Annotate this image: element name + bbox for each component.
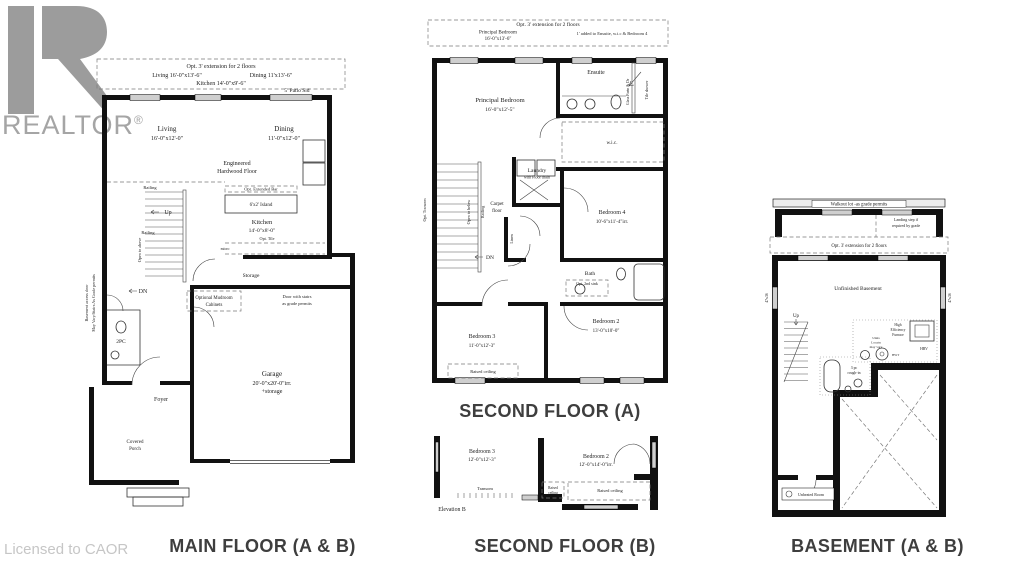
sink-icon [585, 99, 595, 109]
floorplan-sheet: REALTOR® Licensed to CAOR Opt. 3' extens… [0, 0, 1024, 572]
sfa-dn-label: DN [486, 255, 494, 261]
principal-dim: 16'-0"x12'-5" [485, 107, 514, 113]
up-arrow-icon [151, 210, 159, 214]
bsmt-labels: Unfinished Basement 47x36 47x36 [765, 285, 952, 303]
sfb-bed2-dim: 12'-0"x14'-0"irr. [579, 462, 613, 468]
floor-note-1: Engineered [223, 161, 250, 167]
bsmt-opt-ext-label: Opt. 3' extension for 2 floors [831, 244, 886, 249]
floor-note-2: Hardwood Floor [217, 169, 257, 175]
unheated-label: Unheated Room [798, 492, 825, 497]
tub-icon [634, 264, 664, 300]
bed4-dim: 10'-6"x11'-4"irr. [596, 220, 628, 225]
carpet-label-2: floor [492, 209, 502, 214]
bed2-label: Bedroom 2 [593, 319, 620, 325]
living-label: Living [158, 125, 177, 133]
kitchen-label: Kitchen [252, 219, 273, 226]
main-powder-room [107, 310, 140, 365]
laundry-label-2: with Floor drain [524, 175, 550, 180]
hwt-icon [876, 348, 888, 360]
porch-label-2: Porch [129, 447, 141, 452]
landing-note-2: required by grade [892, 223, 920, 228]
sfa-opt-added: 1' added to Ensuite, w.i.c & Bedroom 4 [577, 31, 649, 37]
dn-arrow-icon [129, 289, 137, 293]
kitchen-dim: 14'-0"x8'-0" [249, 228, 276, 234]
furnace-label-2: Efficiency [891, 328, 906, 332]
sfb-raised-2: ceiling [548, 491, 558, 495]
sink-icon [567, 99, 577, 109]
micro-label: micro [221, 247, 230, 251]
bsmt-unexcavated-walls [833, 363, 946, 517]
wic-label: w.i.c. [606, 140, 617, 146]
laundry-label-1: Laundry [528, 168, 547, 174]
main-opt-living: Living 16'-0"x13'-6" [152, 73, 202, 79]
main-opt-dining: Dining 11'x13'-6" [250, 73, 293, 79]
main-garage-door [230, 461, 330, 464]
second-floor-b-plan: Bedroom 3 12'-0"x12'-3" Bedroom 2 12'-0"… [418, 430, 688, 525]
main-opt-ext-label: Opt. 3' extension for 2 floors [186, 63, 256, 70]
main-exterior-walls [102, 95, 355, 464]
toilet-icon [611, 95, 621, 109]
raised-ceiling-label: Raised ceiling [470, 369, 496, 374]
open-above-label: Open to above [137, 238, 142, 263]
mudroom-label-1: Optional Mudroom [195, 296, 232, 301]
main-opt-kitchen: Kitchen 14'-0"x9'-6" [196, 81, 246, 87]
sfa-door-arcs [482, 118, 588, 330]
sfa-stairs [437, 162, 481, 272]
window-size-left: 47x36 [765, 293, 769, 303]
sfb-transom-label: Transom [477, 486, 493, 491]
opt-transom-label: Opt. Transom [422, 198, 427, 222]
carpet-label-1: Carpet [490, 202, 504, 207]
hrv-label: HRV [920, 347, 928, 351]
sfb-raised-full: Raised ceiling [597, 488, 623, 493]
bsmt-stairs: Up [784, 314, 808, 382]
mudroom-label-2: Cabinets [206, 303, 223, 308]
main-mudroom [187, 291, 241, 311]
foyer-label: Foyer [154, 397, 168, 403]
sfa-opt-pb-1: Principal Bedroom [479, 31, 517, 36]
tank-icon [861, 351, 870, 360]
up-label: Up [164, 210, 171, 216]
sfa-opt-ext: Opt. 3' extension for 2 floors [516, 21, 579, 28]
units-note-1: Units [872, 336, 880, 340]
railing-label: Railing [480, 205, 485, 218]
sfb-labels: Bedroom 3 12'-0"x12'-3" Bedroom 2 12'-0"… [438, 449, 623, 513]
powder-label: 2PC [116, 339, 126, 345]
sfa-laundry-fixtures [517, 160, 555, 200]
bsmt-unheated-room: Unheated Room [778, 475, 836, 500]
bsmt-rough-in: 3 pc rough-in [820, 357, 870, 395]
caption-second-floor-b: SECOND FLOOR (B) [430, 536, 700, 557]
bsmt-exterior-walls [772, 255, 946, 517]
main-patio-label: 5' Patio Sld [284, 88, 309, 94]
units-note-2: Locatn [871, 341, 881, 345]
opt-tile-label: Opt. Tile [260, 236, 275, 241]
main-kitchen-fixtures [225, 140, 325, 254]
hwt-label: HWT [892, 353, 899, 357]
railing-label-2: Railing [141, 230, 155, 235]
ensuite-label: Ensuite [587, 70, 605, 76]
tile-shower-label: Tile shower [644, 80, 649, 100]
living-dim: 16'-0"x12'-0" [151, 136, 184, 142]
bsmt-up-label: Up [793, 314, 800, 319]
basement-plan: Walkout lot -as grade permits Landing st… [758, 192, 970, 532]
rough-in-label-2: rough-in [847, 371, 860, 375]
sink-icon [111, 351, 119, 359]
second-floor-a-plan: Opt. 3' extension for 2 floors Principal… [420, 12, 680, 397]
logo-stem [8, 6, 34, 114]
porch-label-1: Covered [127, 440, 144, 445]
dining-dim: 11'-0"x12'-0" [268, 136, 300, 142]
railing-label-1: Railing [143, 185, 157, 190]
bsmt-walkout: Walkout lot -as grade permits Landing st… [773, 199, 945, 237]
storage-label: Storage [243, 273, 260, 279]
main-stairs [107, 182, 225, 282]
toilet-icon [854, 379, 862, 387]
opt-sink-label: Opt. 2nd sink [576, 281, 598, 286]
sfb-raised-1: Raised [548, 486, 558, 490]
glass-partn-label: Glass Partn & Dr [626, 78, 630, 105]
furnace-icon [910, 321, 934, 341]
sfb-walls [434, 436, 658, 510]
door-note-1: Door with stairs [283, 294, 312, 299]
sfa-opt-pb-2: 16'-0"x13'-6" [485, 37, 512, 42]
sfb-transom-dashes [458, 493, 512, 498]
walkout-label: Walkout lot -as grade permits [831, 203, 888, 208]
main-floor-plan: Opt. 3' extension for 2 floors Living 16… [75, 45, 375, 535]
dn-label: DN [139, 289, 148, 295]
island-label: 6'x2' Island [250, 203, 273, 208]
bed2-dim: 13'-0"x10'-0" [593, 329, 620, 334]
sfa-dn-arrow-icon [475, 255, 483, 259]
furnace-label-1: High [894, 323, 901, 327]
furnace-label-3: Furnace [892, 333, 904, 337]
garage-dim2: +storage [262, 389, 283, 395]
open-below-label: Open to below [466, 200, 471, 225]
bed3-label: Bedroom 3 [469, 334, 496, 340]
caption-basement: BASEMENT (A & B) [770, 536, 985, 557]
window-size-right: 47x36 [948, 293, 952, 303]
dining-label: Dining [274, 125, 294, 133]
unfinished-label: Unfinished Basement [834, 285, 882, 292]
toilet-icon [617, 268, 626, 280]
garage-dim: 20'-0"x20'-0"irr. [253, 381, 292, 387]
sfb-closet-doors [614, 444, 650, 464]
sfb-bed3-label: Bedroom 3 [469, 449, 495, 455]
tub-icon [824, 360, 840, 392]
principal-label: Principal Bedroom [475, 97, 524, 104]
porch-step-2 [133, 497, 183, 506]
caption-second-floor-a: SECOND FLOOR (A) [420, 401, 680, 422]
opt-bar-label: Opt. Extended Bar [244, 187, 278, 192]
bath-label: Bath [585, 271, 596, 277]
garage-label: Garage [262, 370, 282, 378]
side-note-2: May Vary/Stairs As Grade permits [91, 274, 96, 332]
rough-in-label-1: 3 pc [851, 366, 858, 370]
linen-label: Linen [509, 234, 514, 243]
door-note-2: as grade permits [282, 301, 312, 306]
side-note-1: Basement access door [84, 284, 89, 322]
bsmt-opt-extension: Opt. 3' extension for 2 floors [770, 237, 948, 253]
caption-main-floor: MAIN FLOOR (A & B) [110, 536, 415, 557]
porch-step-1 [127, 488, 189, 497]
bed3-dim: 11'-0"x12'-3" [469, 344, 496, 349]
sfb-elevation-label: Elevation B [438, 507, 466, 513]
bsmt-mechanical: High Efficiency Furnace Units Locatn may… [853, 320, 937, 362]
sfa-opt-extension-note: Opt. 3' extension for 2 floors Principal… [428, 20, 668, 46]
bed4-label: Bedroom 4 [599, 210, 626, 216]
sfb-bed3-dim: 12'-0"x12'-3" [468, 457, 496, 463]
main-opt-extension-note: Opt. 3' extension for 2 floors Living 16… [97, 59, 345, 89]
toilet-icon [116, 321, 126, 333]
sfb-bed2-label: Bedroom 2 [583, 454, 609, 460]
landing-note-1: Landing step if [894, 217, 919, 222]
